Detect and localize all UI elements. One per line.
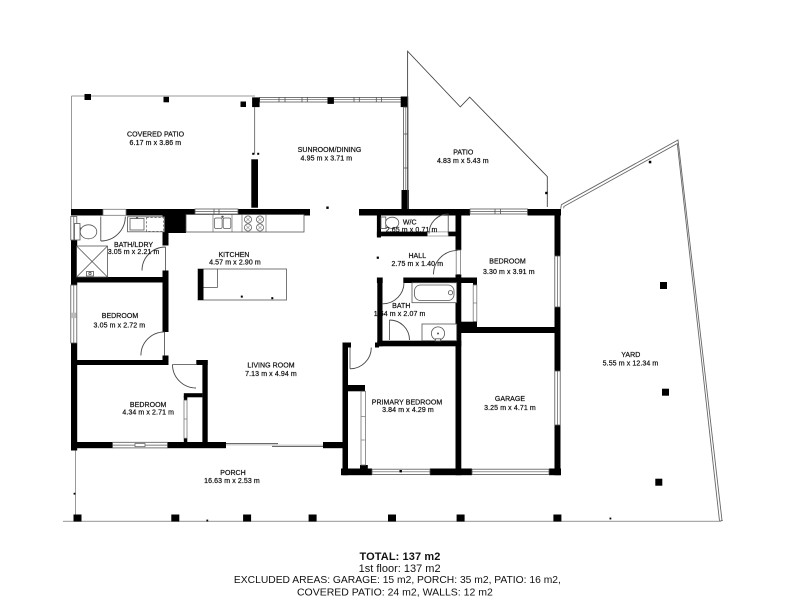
svg-text:W/C: W/C bbox=[403, 220, 417, 227]
svg-text:BEDROOM: BEDROOM bbox=[130, 402, 167, 409]
svg-text:3.25 m x 4.71 m: 3.25 m x 4.71 m bbox=[484, 405, 536, 412]
svg-text:3.05 m x 2.21 m: 3.05 m x 2.21 m bbox=[108, 249, 160, 256]
svg-text:4.34 m x 2.71 m: 4.34 m x 2.71 m bbox=[122, 409, 174, 416]
svg-text:4.95 m x 3.71 m: 4.95 m x 3.71 m bbox=[301, 155, 353, 162]
svg-text:7.13 m x 4.94 m: 7.13 m x 4.94 m bbox=[245, 371, 297, 378]
svg-text:6.17 m x 3.86 m: 6.17 m x 3.86 m bbox=[130, 140, 182, 147]
svg-text:5.55 m x 12.34 m: 5.55 m x 12.34 m bbox=[603, 360, 659, 367]
svg-text:2.75 m x 1.40 m: 2.75 m x 1.40 m bbox=[391, 261, 443, 268]
svg-text:EXCLUDED AREAS: GARAGE: 15 m2,: EXCLUDED AREAS: GARAGE: 15 m2, PORCH: 35… bbox=[234, 575, 561, 586]
svg-text:16.63 m x 2.53 m: 16.63 m x 2.53 m bbox=[204, 478, 260, 485]
svg-text:PORCH: PORCH bbox=[220, 470, 246, 477]
svg-text:TOTAL: 137 m2: TOTAL: 137 m2 bbox=[360, 551, 441, 563]
svg-text:COVERED PATIO: 24 m2, WALLS: 1: COVERED PATIO: 24 m2, WALLS: 12 m2 bbox=[297, 586, 493, 598]
svg-text:4.57 m x 2.90 m: 4.57 m x 2.90 m bbox=[209, 259, 261, 266]
svg-text:PRIMARY BEDROOM: PRIMARY BEDROOM bbox=[372, 400, 443, 407]
svg-text:3.84 m x 4.29 m: 3.84 m x 4.29 m bbox=[382, 407, 434, 414]
svg-text:SUNROOM/DINING: SUNROOM/DINING bbox=[298, 147, 362, 154]
svg-text:BEDROOM: BEDROOM bbox=[102, 313, 139, 320]
svg-text:GARAGE: GARAGE bbox=[495, 396, 526, 403]
svg-text:2.65 m x 0.71 m: 2.65 m x 0.71 m bbox=[386, 227, 438, 234]
svg-text:COVERED PATIO: COVERED PATIO bbox=[127, 132, 185, 139]
svg-text:KITCHEN: KITCHEN bbox=[218, 252, 249, 259]
svg-text:BATH/LDRY: BATH/LDRY bbox=[114, 242, 153, 249]
svg-text:3.05 m x 2.72 m: 3.05 m x 2.72 m bbox=[94, 323, 146, 330]
svg-text:4.83 m x 5.43 m: 4.83 m x 5.43 m bbox=[437, 158, 489, 165]
svg-text:PATIO: PATIO bbox=[453, 150, 474, 157]
svg-text:LIVING ROOM: LIVING ROOM bbox=[247, 363, 294, 370]
svg-text:3.30 m x 3.91 m: 3.30 m x 3.91 m bbox=[483, 269, 535, 276]
svg-text:YARD: YARD bbox=[621, 352, 640, 359]
svg-text:HALL: HALL bbox=[408, 253, 426, 260]
svg-text:BEDROOM: BEDROOM bbox=[489, 259, 526, 266]
svg-text:1st floor: 137 m2: 1st floor: 137 m2 bbox=[359, 563, 441, 575]
svg-text:BATH: BATH bbox=[392, 303, 410, 310]
